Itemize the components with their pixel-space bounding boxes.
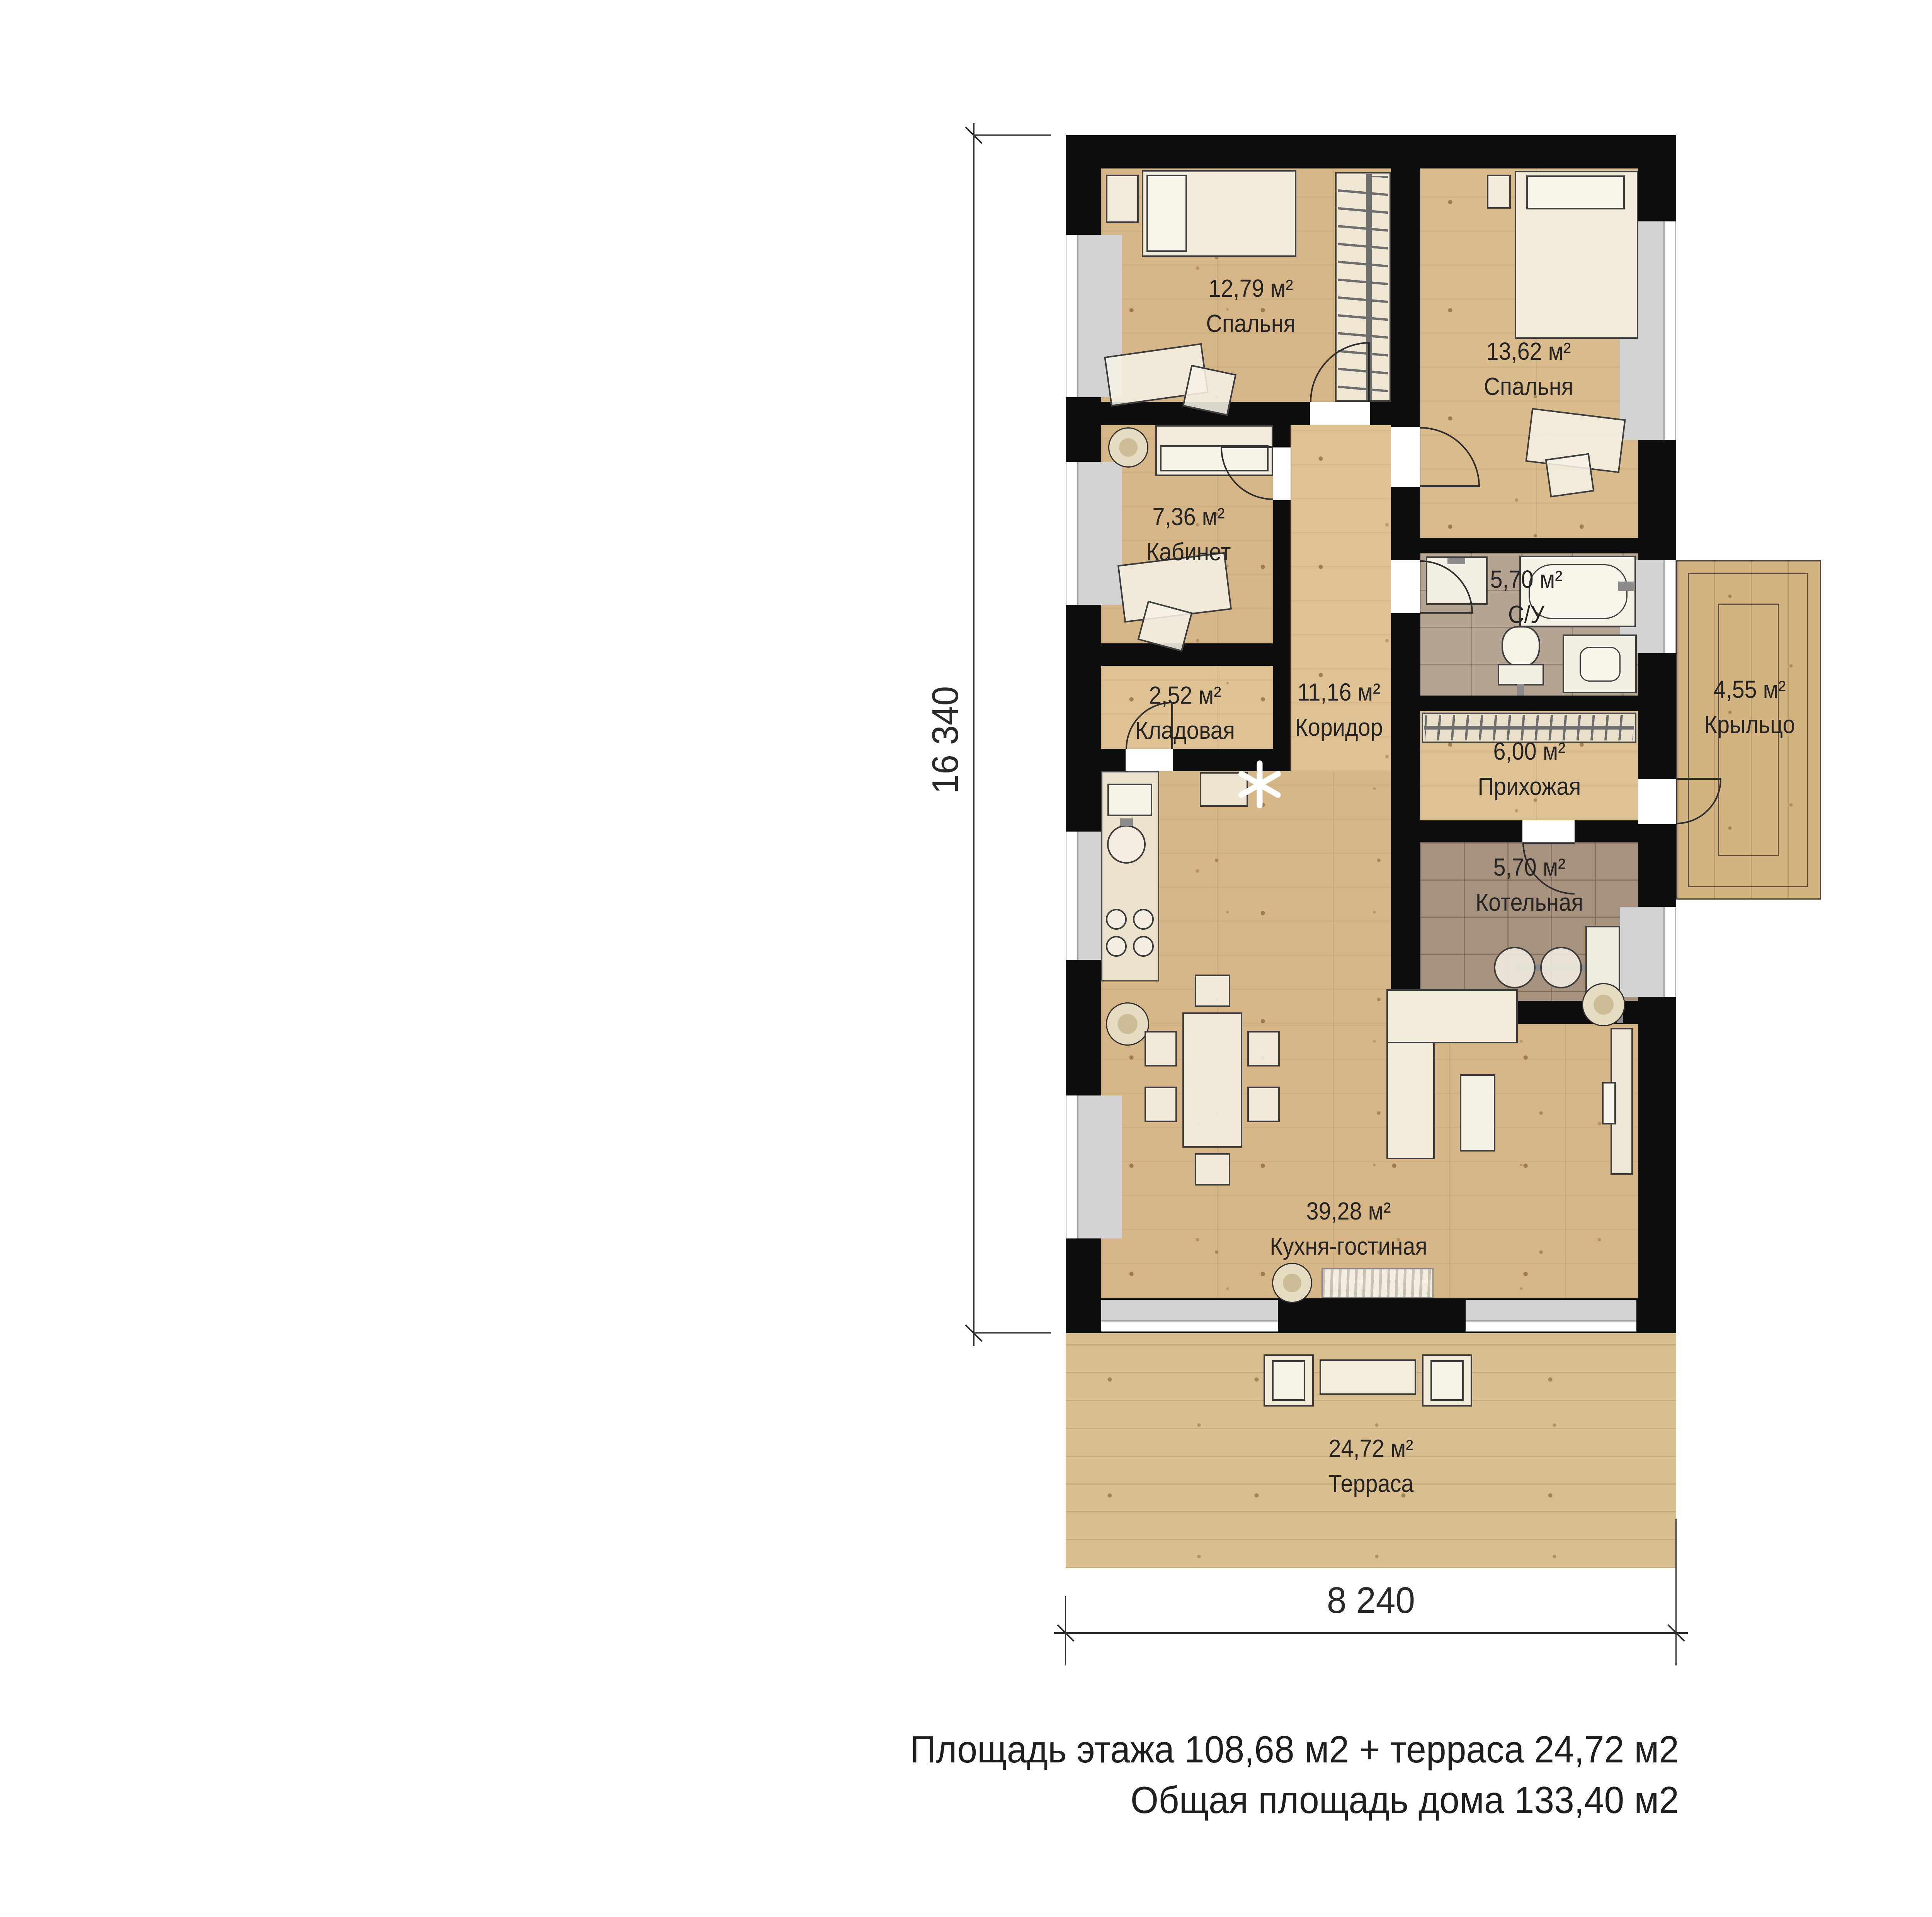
- toilet-tank-symbol: [1498, 664, 1544, 685]
- boiler-tank-symbol: [1540, 947, 1582, 988]
- room-area: 24,72 м²: [1328, 1431, 1414, 1466]
- room-name: Спальня: [1484, 369, 1573, 404]
- dimension-extension: [1675, 1519, 1677, 1665]
- nightstand-symbol: [1487, 175, 1511, 209]
- room-area: 11,16 м²: [1295, 675, 1383, 710]
- room-bedroom-2-label: 13,62 м² Спальня: [1484, 334, 1573, 404]
- door-bathroom-leaf: [1420, 612, 1473, 614]
- room-area: 5,70 м²: [1476, 850, 1583, 885]
- dining-chair-symbol: [1247, 1031, 1280, 1067]
- door-bathroom-gap: [1391, 560, 1420, 613]
- window-kitchen-left-2: [1066, 1095, 1122, 1238]
- dining-chair-symbol: [1247, 1087, 1280, 1122]
- bathtub-faucet-icon: [1618, 582, 1634, 591]
- sink-icon: [1107, 825, 1146, 864]
- door-porch-leaf: [1676, 778, 1721, 780]
- window-kitchen-bottom-left: [1101, 1300, 1278, 1332]
- window-kitchen-bottom-right: [1466, 1300, 1636, 1332]
- stove-burner-icon: [1133, 909, 1154, 930]
- room-area: 4,55 м²: [1704, 672, 1795, 707]
- door-bedroom1-leaf: [1368, 342, 1370, 402]
- vanity-basin-icon: [1580, 647, 1621, 682]
- room-office-label: 7,36 м² Кабинет: [1146, 499, 1231, 570]
- room-name: Крыльцо: [1704, 707, 1795, 742]
- room-name: Котельная: [1476, 885, 1583, 920]
- plant-icon: [1108, 427, 1148, 468]
- room-area: 39,28 м²: [1270, 1194, 1427, 1229]
- hall-wardrobe-rail-icon: [1424, 726, 1634, 730]
- dimension-line-vertical: [973, 123, 975, 1346]
- room-corridor-label: 11,16 м² Коридор: [1295, 675, 1383, 745]
- terrace-chair-seat-icon: [1430, 1360, 1464, 1401]
- terrace-table-symbol: [1320, 1359, 1416, 1395]
- dimension-line-horizontal: [1054, 1632, 1688, 1634]
- cutting-board-symbol: [1107, 784, 1152, 816]
- door-bedroom2-leaf: [1420, 485, 1480, 487]
- door-office-gap: [1273, 447, 1291, 500]
- room-boiler-label: 5,70 м² Котельная: [1476, 850, 1583, 920]
- dining-chair-symbol: [1195, 975, 1230, 1007]
- room-name: Терраса: [1328, 1466, 1414, 1501]
- door-boiler-gap: [1522, 820, 1575, 842]
- room-terrace-label: 24,72 м² Терраса: [1328, 1431, 1414, 1501]
- door-boiler-leaf: [1522, 842, 1575, 844]
- room-area: 12,79 м²: [1206, 271, 1295, 306]
- sofa-chaise-symbol: [1386, 1042, 1435, 1159]
- room-kitchen-living-label: 39,28 м² Кухня-гостиная: [1270, 1194, 1427, 1264]
- area-summary: Площадь этажа 108,68 м2 + терраса 24,72 …: [818, 1724, 1679, 1826]
- room-area: 13,62 м²: [1484, 334, 1573, 369]
- boiler-tank-symbol: [1494, 947, 1536, 988]
- room-name: Коридор: [1295, 710, 1383, 745]
- room-porch-label: 4,55 м² Крыльцо: [1704, 672, 1795, 742]
- dimension-horizontal-value: 8 240: [1327, 1579, 1415, 1622]
- plant-icon: [1272, 1263, 1312, 1303]
- room-bathroom-label: 5,70 м² С/У: [1490, 562, 1563, 632]
- sofa-symbol: [1386, 989, 1518, 1043]
- dining-table-symbol: [1182, 1012, 1242, 1148]
- room-name: С/У: [1490, 597, 1563, 632]
- plant-icon: [1106, 1002, 1149, 1046]
- room-area: 2,52 м²: [1135, 678, 1235, 713]
- summary-line-total: Общая площадь дома 133,40 м2: [818, 1775, 1679, 1825]
- floor-plan: 12,79 м² Спальня 13,62 м² Спальня 7,36 м…: [0, 0, 1932, 1917]
- room-area: 7,36 м²: [1146, 499, 1231, 534]
- toilet-flush-icon: [1517, 684, 1524, 696]
- door-bedroom2-gap: [1391, 427, 1420, 487]
- stove-burner-icon: [1106, 909, 1127, 930]
- dimension-extension: [974, 134, 1051, 136]
- window-office-left: [1066, 462, 1122, 605]
- stove-burner-icon: [1133, 936, 1154, 957]
- dimension-extension: [974, 1332, 1051, 1334]
- dining-chair-symbol: [1145, 1087, 1177, 1122]
- room-name: Прихожая: [1478, 769, 1581, 804]
- door-office-leaf: [1221, 446, 1273, 448]
- dining-chair-symbol: [1145, 1031, 1177, 1067]
- room-name: Спальня: [1206, 306, 1295, 341]
- room-area: 6,00 м²: [1478, 734, 1581, 769]
- dimension-vertical-value: 16 340: [924, 686, 967, 794]
- plant-icon: [1582, 983, 1625, 1026]
- terrace-chair-seat-icon: [1272, 1360, 1305, 1401]
- pillow-symbol: [1146, 175, 1187, 252]
- window-boiler-right: [1620, 907, 1676, 997]
- dining-chair-symbol: [1195, 1153, 1230, 1186]
- tv-icon: [1602, 1082, 1616, 1124]
- chair-symbol: [1545, 453, 1595, 497]
- dimension-extension: [1065, 1596, 1066, 1665]
- room-area: 5,70 м²: [1490, 562, 1563, 597]
- toilet-symbol: [1502, 626, 1540, 668]
- door-storage-gap: [1126, 749, 1173, 771]
- room-name: Кабинет: [1146, 534, 1231, 570]
- washer-control-icon: [1447, 558, 1465, 564]
- door-porch-gap: [1638, 779, 1676, 824]
- snowflake-icon: [1236, 760, 1284, 808]
- room-name: Кухня-гостиная: [1270, 1229, 1427, 1264]
- stove-burner-icon: [1106, 936, 1127, 957]
- coffee-table-symbol: [1460, 1074, 1495, 1152]
- room-bedroom-1-label: 12,79 м² Спальня: [1206, 271, 1295, 341]
- faucet-icon: [1120, 818, 1133, 826]
- pillow-symbol: [1526, 175, 1625, 209]
- room-hallway-label: 6,00 м² Прихожая: [1478, 734, 1581, 804]
- room-name: Кладовая: [1135, 713, 1235, 748]
- nightstand-symbol: [1106, 175, 1139, 223]
- summary-line-floor: Площадь этажа 108,68 м2 + терраса 24,72 …: [818, 1724, 1679, 1775]
- room-storage-label: 2,52 м² Кладовая: [1135, 678, 1235, 748]
- rug-symbol: [1321, 1268, 1434, 1298]
- door-bedroom1-gap: [1310, 402, 1370, 425]
